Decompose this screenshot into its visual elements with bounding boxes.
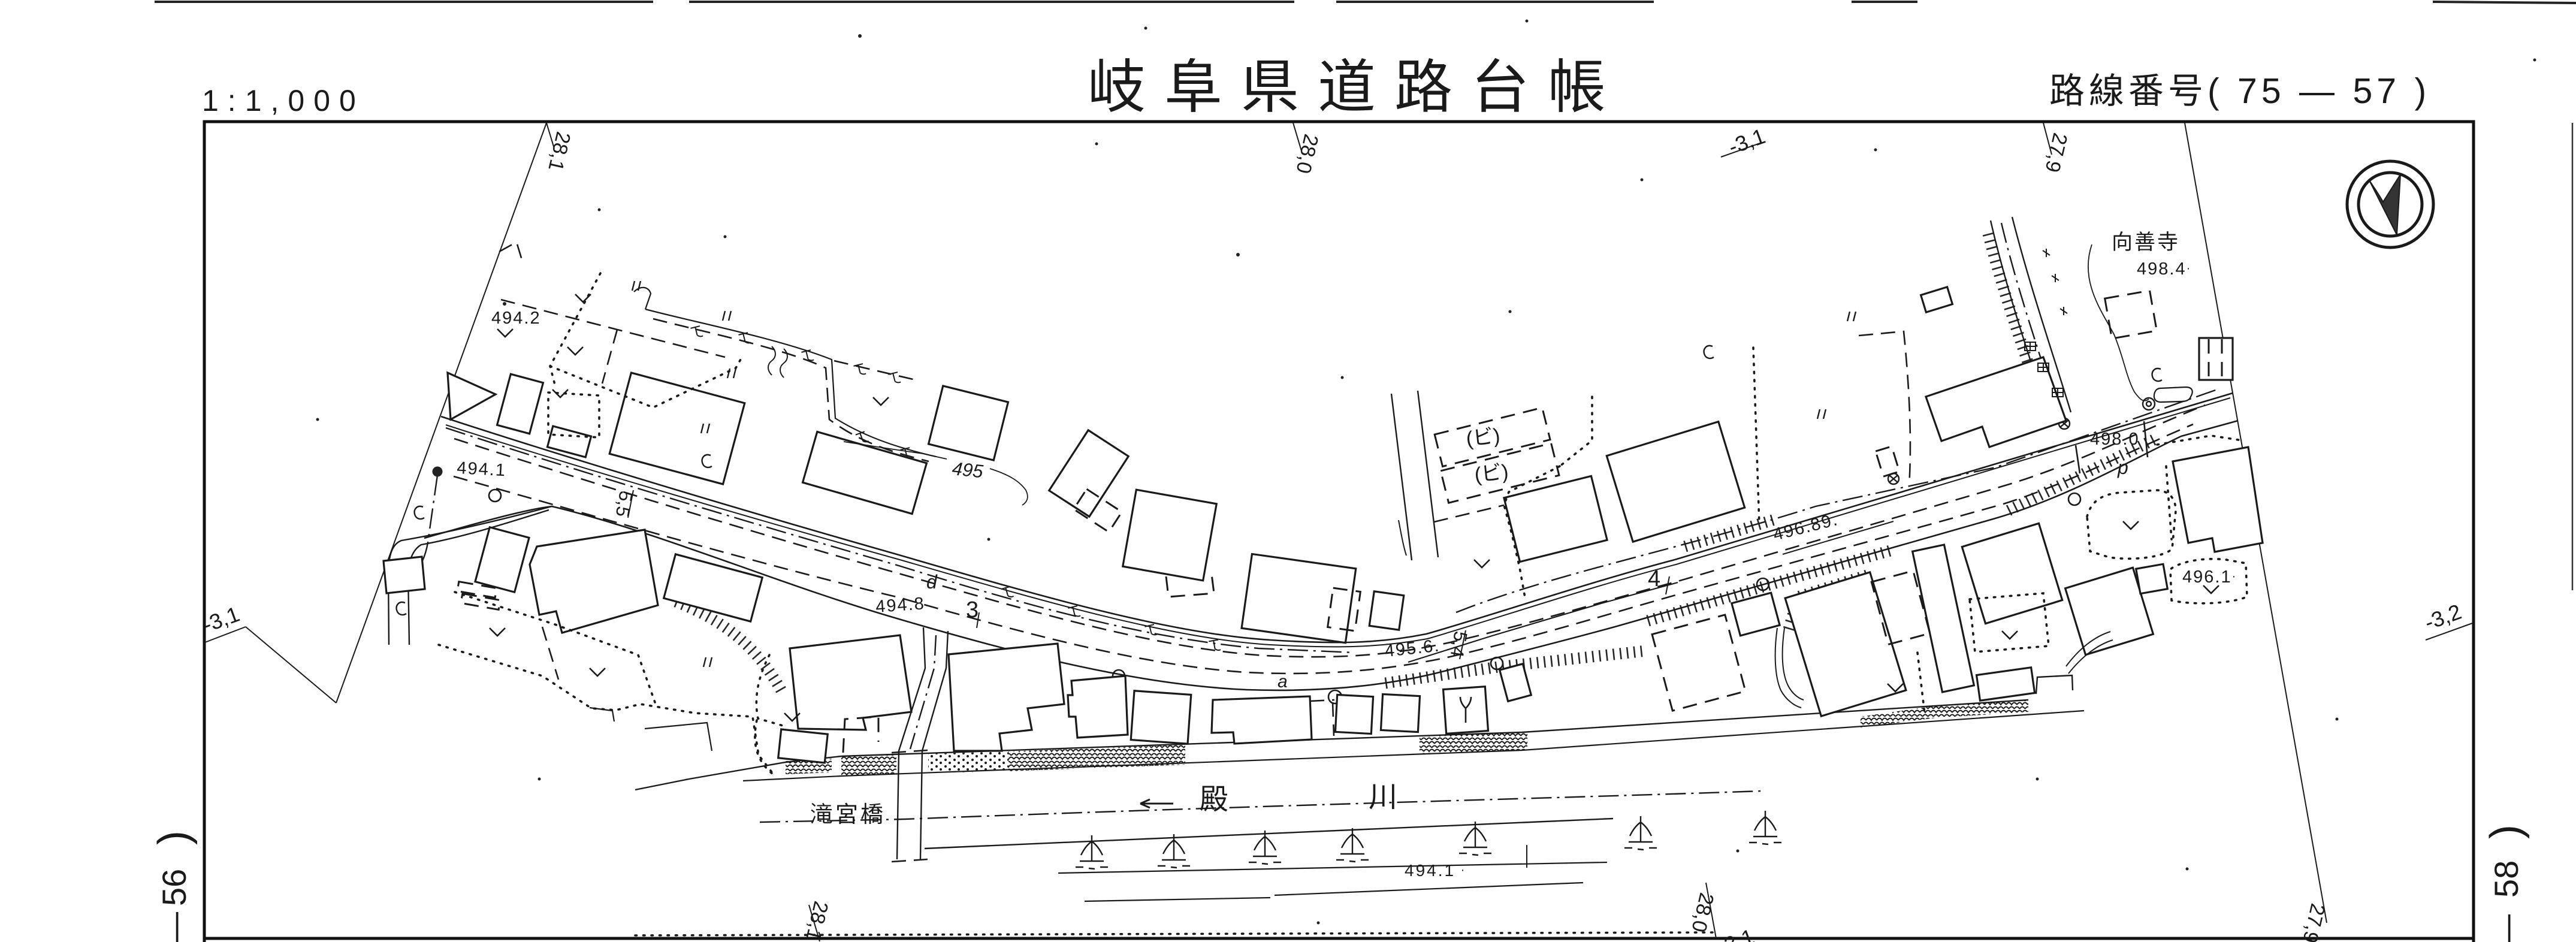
svg-text:3: 3 [966, 597, 979, 623]
svg-text:1:1,000: 1:1,000 [202, 84, 365, 117]
svg-text:496.1·: 496.1· [2182, 567, 2237, 587]
svg-text:a: a [1278, 672, 1288, 692]
svg-text:路線番号( 75 — 57 ): 路線番号( 75 — 57 ) [2049, 71, 2430, 111]
svg-text:—: — [155, 912, 193, 942]
svg-text:494.8·: 494.8· [875, 594, 931, 617]
svg-text:殿: 殿 [1200, 784, 1228, 816]
svg-text:p: p [2117, 457, 2128, 478]
svg-text:岐阜県道路台帳: 岐阜県道路台帳 [1088, 55, 1624, 120]
svg-text:498.0: 498.0 [2090, 430, 2140, 449]
svg-text:—: — [2487, 914, 2525, 942]
svg-text:d: d [926, 571, 938, 593]
svg-text:(ビ): (ビ) [1465, 424, 1501, 451]
svg-text:494.2: 494.2 [491, 309, 541, 328]
svg-text:498.4·: 498.4· [2137, 259, 2191, 279]
svg-text:川: 川 [1369, 781, 1397, 813]
svg-text:495: 495 [951, 458, 985, 482]
svg-text:(ビ): (ビ) [1473, 460, 1509, 487]
svg-text:滝宮橋: 滝宮橋 [810, 802, 886, 828]
svg-text:5,4: 5,4 [1446, 630, 1472, 659]
svg-text:494.1: 494.1 [457, 458, 507, 480]
svg-text:58: 58 [2487, 861, 2525, 898]
svg-text:56: 56 [155, 869, 193, 906]
svg-text:): ) [2482, 825, 2530, 839]
svg-text:向善寺: 向善寺 [2112, 231, 2180, 254]
svg-text:4: 4 [1648, 566, 1660, 591]
svg-text:): ) [150, 831, 198, 845]
